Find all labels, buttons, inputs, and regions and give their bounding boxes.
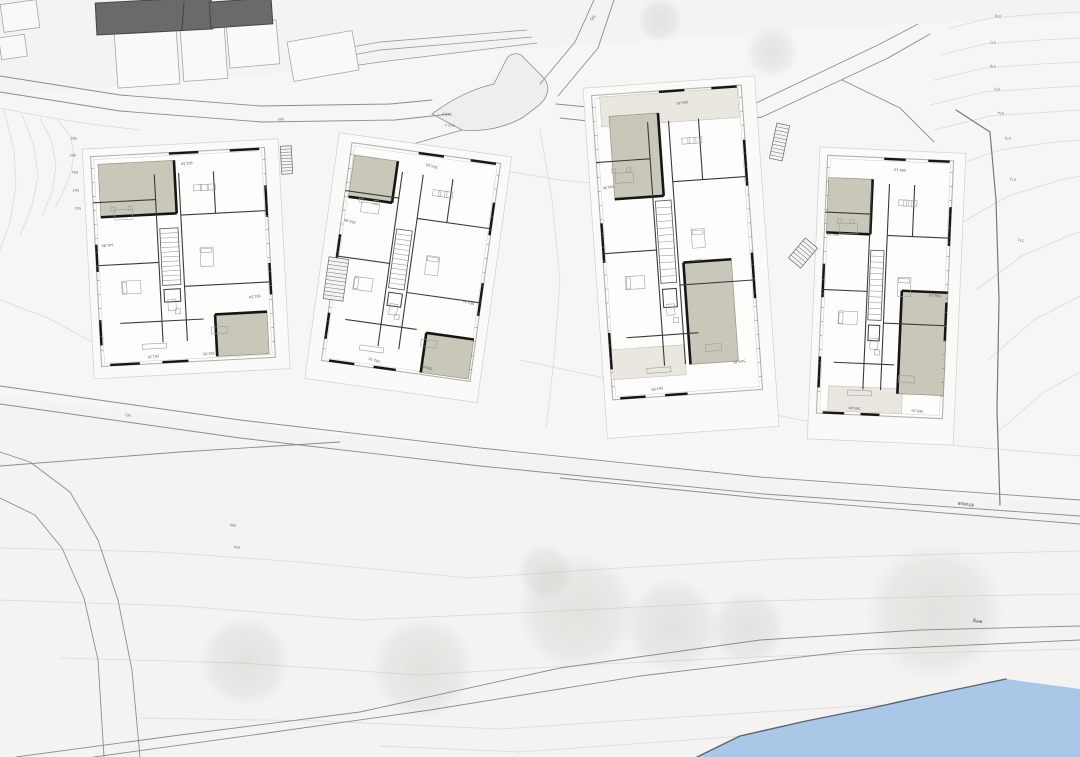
- exterior-wall: [100, 320, 101, 345]
- terrace: [683, 259, 738, 364]
- exterior-wall: [945, 303, 947, 342]
- exterior-wall: [928, 161, 949, 162]
- elevation-label: 578: [994, 14, 1001, 19]
- exterior-wall: [265, 185, 267, 216]
- existing-building-outline: [0, 0, 40, 32]
- elevation-label: 564: [278, 117, 285, 122]
- exterior-wall: [665, 394, 687, 396]
- tree-canopy: [517, 544, 573, 600]
- exterior-wall: [861, 414, 880, 415]
- building-3: 565.40564.90565.40563.90564.20: [583, 76, 779, 438]
- exterior-wall: [169, 152, 199, 154]
- existing-building-outline: [114, 28, 180, 88]
- exterior-wall: [110, 363, 140, 365]
- elevation-label: 576: [989, 64, 996, 69]
- exterior-wall: [819, 356, 820, 387]
- site-plan-canvas: 562.50561.90562.50561.35562.05563.20562.…: [0, 0, 1080, 757]
- site-plan-svg: 562.50561.90562.50561.35562.05563.20562.…: [0, 0, 1080, 757]
- existing-building-outline: [180, 27, 228, 82]
- elevation-label: 560: [230, 523, 237, 528]
- exterior-wall: [230, 149, 260, 151]
- elevation-label: 566: [71, 136, 78, 140]
- exterior-stair: [280, 146, 292, 175]
- exterior-wall: [162, 361, 188, 362]
- exterior-wall: [96, 245, 97, 272]
- elevation-label: 564: [72, 170, 79, 174]
- elevation-label: 559: [234, 545, 241, 550]
- exterior-wall: [884, 159, 905, 160]
- tree-canopy: [199, 616, 291, 708]
- elevation-label: 565.2: [442, 112, 452, 117]
- tree-canopy: [371, 616, 475, 720]
- elevation-label: 565: [70, 153, 77, 157]
- existing-building-dark: [95, 0, 213, 35]
- elevation-label: 565.7: [445, 123, 455, 128]
- elevation-label: 562: [75, 206, 82, 210]
- stair-outline: [280, 146, 292, 175]
- terrace: [98, 160, 177, 217]
- terrace: [826, 177, 872, 234]
- roof-apron: [609, 345, 686, 380]
- terrace: [348, 155, 397, 203]
- tree-canopy: [638, 0, 682, 42]
- existing-building-dark: [209, 0, 273, 28]
- elevation-label: 577: [989, 40, 996, 45]
- existing-building-outline: [226, 20, 280, 68]
- exterior-wall: [822, 264, 823, 298]
- terrace: [897, 291, 947, 396]
- tree-canopy: [624, 578, 720, 674]
- terrace: [609, 113, 664, 199]
- building-1: 562.50561.90562.50561.35562.05: [82, 139, 290, 379]
- elevation-label: 573: [1004, 136, 1011, 141]
- exterior-wall: [949, 207, 951, 246]
- tree-canopy: [746, 26, 798, 78]
- tree-canopy: [865, 542, 1005, 682]
- exterior-wall: [269, 263, 271, 294]
- exterior-wall: [823, 412, 844, 413]
- elevation-label: 575: [993, 87, 1000, 92]
- elevation-label: 574: [997, 111, 1004, 116]
- existing-building-outline: [0, 34, 27, 59]
- roof-apron: [828, 386, 903, 414]
- tree-canopy: [710, 590, 786, 666]
- terrace: [215, 312, 269, 357]
- elevation-label: 563: [73, 188, 80, 192]
- building-4: 566.10565.60566.10564.80565.20: [807, 147, 966, 445]
